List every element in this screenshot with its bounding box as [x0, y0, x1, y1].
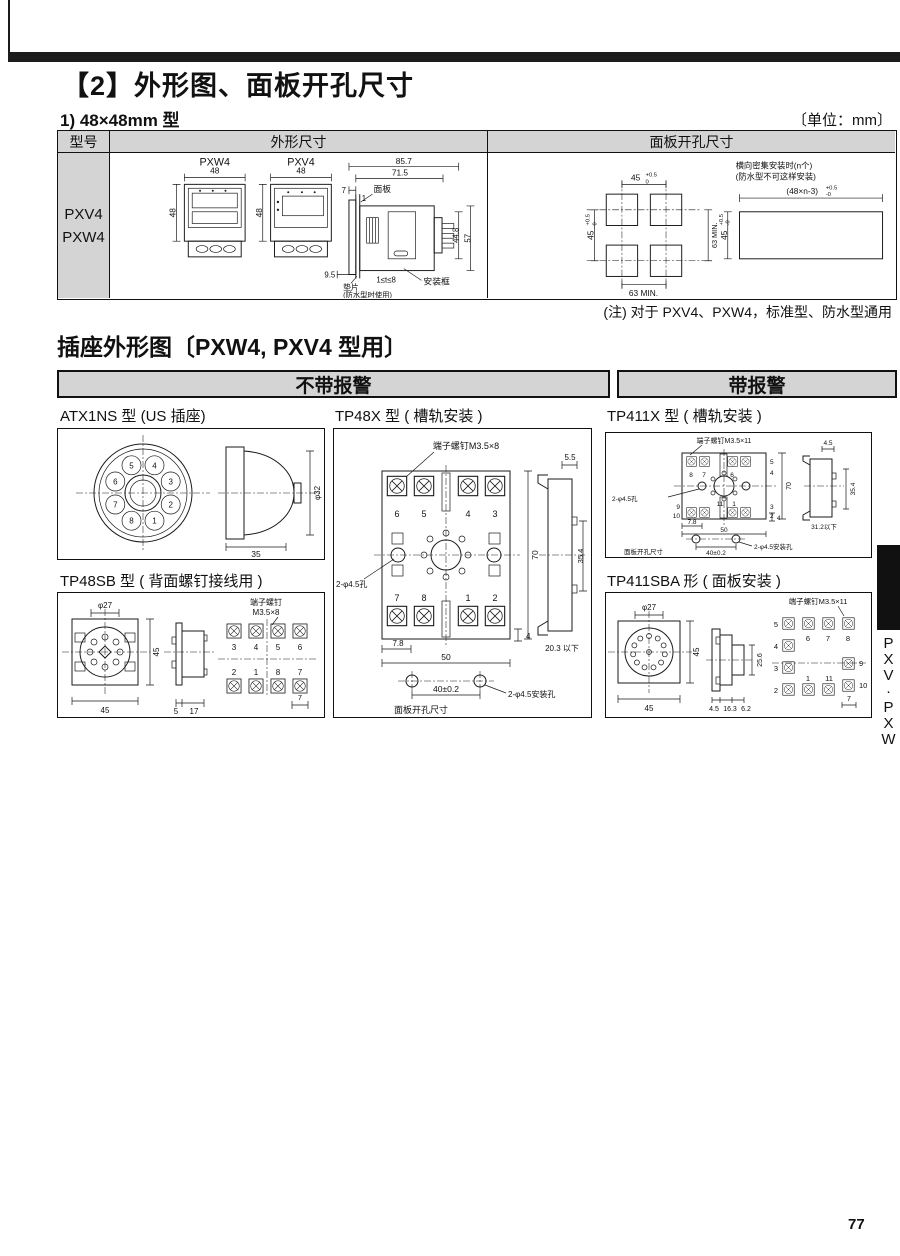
tp48sb-dim45h: 45	[101, 706, 110, 715]
tp48sb-screw-label-1: 端子螺钉	[250, 597, 282, 607]
tp411sba-dim163: 16.3	[723, 706, 737, 713]
pin-1: 1	[152, 517, 157, 526]
tp411x-n4: 4	[770, 470, 774, 477]
dense-width: (48×n-3)	[786, 186, 818, 196]
tp48sb-dim17: 17	[190, 707, 199, 716]
tp48x-hole-label: 2-φ4.5孔	[336, 580, 367, 589]
pin-4: 4	[152, 461, 157, 470]
side-index-tab	[877, 545, 900, 630]
cutout-63h: 63 MIN.	[629, 288, 658, 298]
gasket-note: (防水型时使用)	[343, 291, 392, 298]
tp411x-cutout-label: 面板开孔尺寸	[624, 547, 664, 556]
pin-3: 3	[168, 478, 173, 487]
tp411x-dim45: 4.5	[823, 440, 832, 447]
tp48sb-b7: 7	[298, 668, 303, 677]
dim-48b: 48	[296, 166, 306, 176]
socket-section-title: 插座外形图〔PXW4, PXV4 型用〕	[57, 328, 407, 362]
header-no-alarm: 不带报警	[57, 370, 610, 398]
tp411x-n9: 9	[676, 504, 680, 511]
tp48x-cutout-label: 面板开孔尺寸	[394, 704, 448, 715]
atx1ns-drawing: 5 4 6 3 7 2 8 1 φ32 35	[58, 429, 323, 558]
side-tab-text: P X V · P X W	[877, 636, 900, 748]
tp411sba-t6: 6	[806, 634, 810, 643]
dimension-table: 型号 外形尺寸 面板开孔尺寸 PXV4 PXW4 PXW4 48 48 PXV4…	[57, 130, 897, 300]
tp48sb-dim45v: 45	[152, 647, 161, 656]
dense-45-tolp: +0.5	[719, 213, 725, 225]
panel-label: 面板	[373, 183, 391, 194]
atx1ns-title: ATX1NS 型 (US 插座)	[60, 405, 206, 426]
tp48sb-box: φ27 45 45 5 17 端子螺钉 M3.5×8 3 4 5 6 2 1 8…	[57, 592, 325, 718]
tp48x-dim4: 4	[526, 632, 531, 641]
panel-thickness: 1≤t≤8	[376, 275, 396, 284]
pin-5: 5	[129, 461, 134, 470]
tp48sb-b8: 8	[276, 668, 281, 677]
dim-48v-b: 48	[254, 208, 264, 218]
cutout-45w: 45	[631, 172, 641, 182]
tp411sba-t7: 7	[826, 634, 830, 643]
tp48x-mhole: 2-φ4.5安装孔	[508, 689, 555, 699]
tp48x-dim354: 35.4	[576, 549, 585, 564]
tp48sb-t5: 5	[276, 643, 281, 652]
tp411x-dim4: 4	[777, 515, 781, 522]
tp411x-hole-label: 2-φ4.5孔	[612, 495, 638, 503]
cutout-45w-tolp: +0.5	[645, 173, 657, 179]
tp48sb-pitch7: 7	[298, 693, 302, 702]
pin-6: 6	[113, 478, 118, 487]
pin-8: 8	[129, 517, 134, 526]
tp48sb-b2: 2	[232, 668, 237, 677]
tp411sba-t8: 8	[846, 634, 850, 643]
tp411sba-l2: 2	[774, 686, 778, 695]
pin-2: 2	[168, 501, 173, 510]
page-number: 77	[848, 1216, 865, 1233]
tp48x-box: 端子螺钉M3.5×8 6 5 4 3 2-φ4.5孔 7 8 1 2 70 7.…	[333, 428, 592, 718]
dense-45: 45	[719, 230, 729, 240]
dim-448: 44.8	[452, 227, 461, 243]
tp48x-dim55: 5.5	[564, 453, 576, 462]
tp48x-b1: 1	[465, 593, 470, 603]
col-header-cutout: 面板开孔尺寸	[488, 131, 895, 153]
tp411sba-pitch7: 7	[847, 696, 851, 703]
tp411x-n7: 7	[702, 472, 706, 479]
tp48sb-dia: φ27	[98, 601, 113, 610]
dense-width-tolp: +0.5	[826, 185, 838, 191]
tp411sba-title: TP411SBA 形 ( 面板安装 )	[607, 570, 781, 591]
dim-35: 35	[251, 549, 261, 558]
tp411x-dim50: 50	[720, 527, 728, 534]
tp411x-box: 端子螺钉M3.5×11 8 7 6 5 4 2-φ4.5孔 9 10 11 1 …	[605, 432, 872, 558]
tp48x-b7: 7	[394, 593, 399, 603]
tp411sba-b11: 11	[825, 674, 833, 683]
tp48sb-t4: 4	[254, 643, 259, 652]
dense-note-1: 横向密集安装时(n个)	[736, 161, 813, 171]
tp411x-n5: 5	[770, 459, 774, 466]
tp48x-pitch: 40±0.2	[433, 684, 459, 694]
atx1ns-box: 5 4 6 3 7 2 8 1 φ32 35	[57, 428, 325, 560]
tp411x-dim312: 31.2以下	[811, 523, 837, 531]
cutout-63v: 63 MIN.	[710, 222, 719, 248]
cutout-45h: 45	[586, 230, 596, 240]
tp411sba-dim62: 6.2	[741, 706, 751, 713]
tp411x-drawing: 端子螺钉M3.5×11 8 7 6 5 4 2-φ4.5孔 9 10 11 1 …	[606, 433, 870, 556]
page-title: 【2】外形图、面板开孔尺寸	[62, 64, 414, 103]
tp48x-t5: 5	[421, 509, 426, 519]
model-pxw4: PXW4	[62, 229, 105, 246]
dense-width-tol0: -0	[826, 192, 832, 198]
tp411sba-dia: φ27	[642, 603, 657, 612]
tp411x-dim78: 7.8	[687, 519, 696, 526]
outline-drawing: PXW4 48 48 PXV4 48 48	[110, 153, 488, 298]
dim-857: 85.7	[396, 156, 413, 166]
tp48x-t6: 6	[394, 509, 399, 519]
header-alarm: 带报警	[617, 370, 897, 398]
tp411x-screw-label: 端子螺钉M3.5×11	[697, 436, 752, 445]
tp48x-b2: 2	[492, 593, 497, 603]
tp48x-t4: 4	[465, 509, 470, 519]
tp411sba-l5: 5	[774, 620, 778, 629]
tp411sba-r9: 9	[859, 659, 863, 668]
model-pxv4: PXV4	[64, 206, 102, 223]
model-cell: PXV4 PXW4	[58, 153, 110, 298]
tp48x-dim70: 70	[530, 550, 540, 560]
section-48mm-label: 1) 48×48mm 型	[60, 106, 180, 131]
dim-48: 48	[210, 166, 220, 176]
tp411sba-r10: 10	[859, 681, 867, 690]
tp411x-n10: 10	[673, 513, 681, 520]
dim-7: 7	[342, 186, 346, 195]
tp411x-mhole: 2-φ4.5安装孔	[754, 542, 793, 551]
cutout-drawing-cell: 45 +0.5 0 45 +0.5 0 63 MIN. 63 MIN. 横向密集…	[488, 153, 895, 298]
tp411x-pitch: 40±0.2	[706, 550, 726, 556]
tp411sba-dim256: 25.6	[757, 653, 764, 667]
tp48x-title: TP48X 型 ( 槽轨安装 )	[335, 405, 483, 426]
tp411sba-drawing: φ27 45 45 4.5 16.3 6.2 25.6 端子螺钉M3.5×11 …	[606, 593, 870, 716]
cutout-45h-tol0: 0	[592, 222, 598, 226]
tp411sba-dim45h: 45	[645, 704, 654, 713]
tp411x-title: TP411X 型 ( 槽轨安装 )	[607, 405, 762, 426]
tp48sb-title: TP48SB 型 ( 背面螺钉接线用 )	[60, 570, 263, 591]
dense-note-2: (防水型不可这样安装)	[736, 171, 817, 181]
tp411sba-dim45s: 4.5	[709, 706, 719, 713]
dense-45-tol0: -0	[726, 220, 732, 226]
tp411x-dim70: 70	[786, 482, 793, 490]
unit-note: 〔单位：mm〕	[792, 109, 892, 130]
tp411sba-l3: 3	[774, 664, 778, 673]
dim-57: 57	[463, 234, 472, 243]
tp48x-screw-label: 端子螺钉M3.5×8	[433, 440, 499, 451]
tp411x-n1: 1	[732, 501, 736, 508]
col-header-model: 型号	[58, 131, 110, 153]
cutout-45h-tolp: +0.5	[586, 213, 592, 225]
dim-phi32: φ32	[313, 485, 322, 500]
dim-95: 9.5	[324, 270, 336, 279]
tp48x-t3: 3	[492, 509, 497, 519]
tp48sb-t6: 6	[298, 643, 303, 652]
tp411sba-screw-label: 端子螺钉M3.5×11	[789, 596, 848, 606]
tp48x-b8: 8	[421, 593, 426, 603]
cutout-drawing: 45 +0.5 0 45 +0.5 0 63 MIN. 63 MIN. 横向密集…	[488, 153, 895, 298]
table-note: (注) 对于 PXV4、PXW4，标准型、防水型通用	[603, 302, 892, 322]
tp411x-dim354: 35.4	[850, 482, 857, 495]
col-header-outline: 外形尺寸	[110, 131, 488, 153]
tp48sb-t3: 3	[232, 643, 237, 652]
tp48x-drawing: 端子螺钉M3.5×8 6 5 4 3 2-φ4.5孔 7 8 1 2 70 7.…	[334, 429, 590, 716]
tp48sb-b1: 1	[254, 668, 259, 677]
tp411sba-box: φ27 45 45 4.5 16.3 6.2 25.6 端子螺钉M3.5×11 …	[605, 592, 872, 718]
tp48x-dim50: 50	[441, 652, 451, 662]
tp411x-n3: 3	[770, 504, 774, 511]
tp411sba-dim45v: 45	[692, 647, 701, 656]
tp48x-dim203: 20.3 以下	[545, 644, 579, 653]
outline-drawing-cell: PXW4 48 48 PXV4 48 48	[110, 153, 488, 298]
header-black-bar	[8, 52, 900, 62]
tp48sb-drawing: φ27 45 45 5 17 端子螺钉 M3.5×8 3 4 5 6 2 1 8…	[58, 593, 323, 716]
dim-715: 71.5	[392, 168, 409, 178]
tp48x-dim78: 7.8	[392, 639, 404, 648]
tp411x-n8: 8	[689, 472, 693, 479]
tp411sba-l4: 4	[774, 642, 778, 651]
pin-7: 7	[113, 501, 118, 510]
tp411sba-b1: 1	[806, 674, 810, 683]
tp48sb-screw-label-2: M3.5×8	[253, 608, 280, 617]
frame-label: 安装框	[423, 275, 450, 286]
dim-48v: 48	[168, 208, 178, 218]
tp48sb-dim5: 5	[174, 707, 179, 716]
